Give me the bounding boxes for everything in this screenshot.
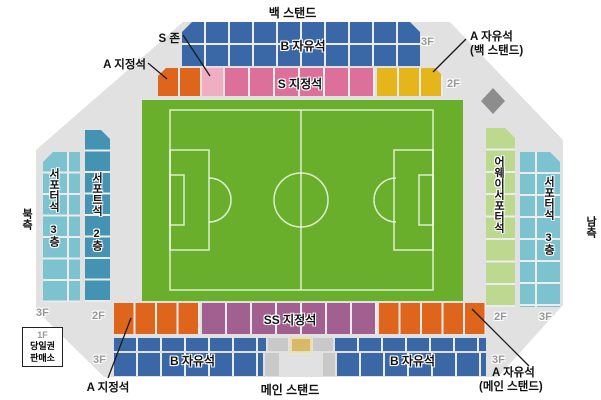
floor-2f-back: 2F <box>447 78 460 90</box>
south-side-label: 남측 <box>584 216 596 238</box>
stadium-seating-map: 백 스탠드 메인 스탠드 B 자유석 S 지정석 SS 지정석 B 자유석 B … <box>0 0 601 400</box>
away-supporters-label: 어웨이서포터석 <box>492 156 504 233</box>
day-ticket-booth-line1: 당일권 <box>23 341 62 352</box>
floor-2f-main-right: 2F <box>494 311 507 323</box>
floor-3f-north: 3F <box>36 307 49 319</box>
a-free-back-callout: A 자유석 (백 스탠드) <box>470 30 523 58</box>
b-free-main-right-label: B 자유석 <box>365 352 460 369</box>
back-stand-title: 백 스탠드 <box>240 4 345 21</box>
main-b-free-upper-right-block <box>335 338 486 351</box>
center-box-block <box>290 337 312 353</box>
floor-2f-main-left: 2F <box>92 310 105 322</box>
a-free-main-callout-line1: A 자유석 <box>479 366 543 380</box>
tunnel-block <box>265 353 279 376</box>
back-stand-a-reserved-block <box>158 68 200 96</box>
main-stand-a-free-block <box>379 303 486 334</box>
floor-3f-main-left: 3F <box>93 354 106 366</box>
a-free-main-callout: A 자유석 (메인 스탠드) <box>479 366 543 394</box>
north-supporters-3f-label: 서포터석 3층 <box>47 168 59 247</box>
a-free-main-callout-line2: (메인 스탠드) <box>479 380 543 394</box>
a-reserved-back-callout: A 지정석 <box>76 56 146 72</box>
a-reserved-main-callout: A 지정석 <box>72 379 144 395</box>
a-free-back-callout-line2: (백 스탠드) <box>470 44 523 58</box>
ss-reserved-label: SS 지정석 <box>240 311 340 328</box>
s-reserved-label: S 지정석 <box>250 75 350 92</box>
floor-3f-south: 3F <box>539 311 552 323</box>
s-zone-block <box>202 68 223 96</box>
tunnel-block <box>323 353 335 376</box>
pitch-markings <box>142 100 463 301</box>
day-ticket-booth-floor: 1F <box>23 330 62 341</box>
main-b-free-upper-left-block <box>114 338 266 351</box>
main-stand-title: 메인 스탠드 <box>240 381 340 398</box>
north-supporters-2f-label: 서포트석 2층 <box>90 172 102 251</box>
b-free-back-label: B 자유석 <box>250 37 356 54</box>
floor-3f-back: 3F <box>421 36 434 48</box>
s-zone-callout: S 존 <box>128 30 180 46</box>
back-stand-a-free-block <box>377 68 443 96</box>
tunnel-block <box>313 338 333 351</box>
b-free-main-left-label: B 자유석 <box>145 352 240 369</box>
pitch <box>142 100 463 301</box>
north-side-label: 북측 <box>20 208 32 230</box>
tunnel-block <box>268 338 288 351</box>
south-supporters-3f-label: 서포터석 3층 <box>542 176 554 255</box>
main-stand-a-reserved-block <box>114 303 200 334</box>
floor-3f-main-right: 3F <box>492 354 505 366</box>
day-ticket-booth-box: 1F 당일권 판매소 <box>22 327 63 367</box>
day-ticket-booth-line2: 판매소 <box>23 353 62 364</box>
a-free-back-callout-line1: A 자유석 <box>470 30 523 44</box>
